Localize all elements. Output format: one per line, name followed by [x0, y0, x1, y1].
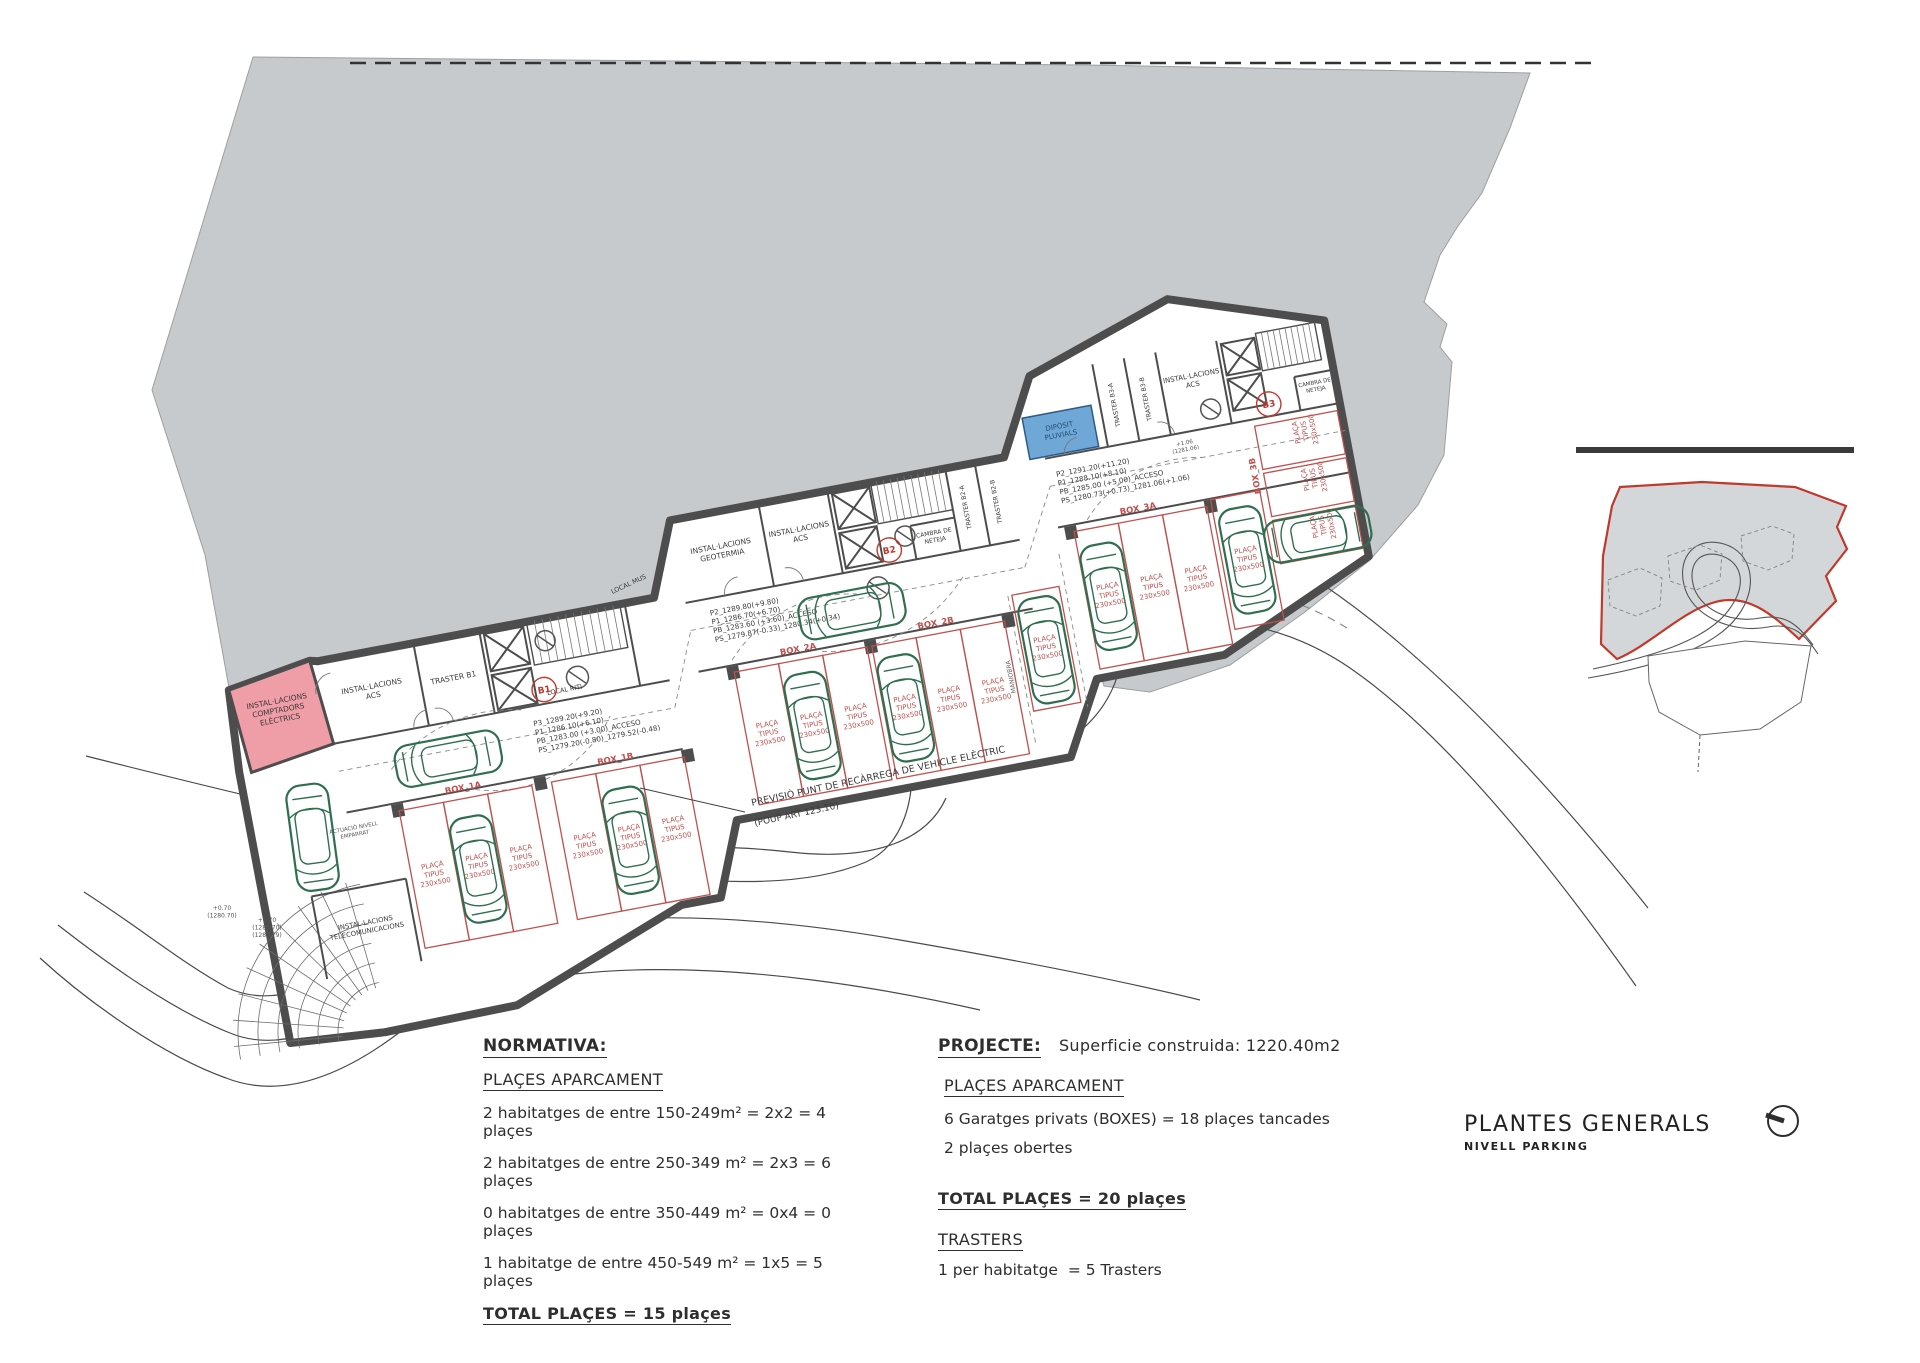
- location-inset-map: [1576, 447, 1854, 772]
- projecte-line: 6 Garatges privats (BOXES) = 18 plaçes t…: [944, 1110, 1368, 1128]
- normativa-block: NORMATIVA: PLAÇES APARCAMENT 2 habitatge…: [483, 1036, 843, 1323]
- normativa-total: TOTAL PLAÇES = 15 plaçes: [483, 1304, 731, 1325]
- inset-lower-parcel: [1648, 641, 1811, 735]
- projecte-heading: PROJECTE:: [938, 1036, 1041, 1058]
- normativa-subheading: PLAÇES APARCAMENT: [483, 1070, 663, 1091]
- projecte-line: 2 plaçes obertes: [944, 1139, 1368, 1157]
- projecte-superficie: Superficie construida: 1220.40m2: [1059, 1036, 1341, 1055]
- spot-level-entrance-1: +0.70(1280.70): [207, 905, 237, 920]
- trasters-heading: TRASTERS: [938, 1230, 1023, 1251]
- normativa-line: 1 habitatge de entre 450-549 m² = 1x5 = …: [483, 1254, 843, 1290]
- inset-parcel: [1601, 482, 1847, 659]
- normativa-heading: NORMATIVA:: [483, 1036, 607, 1058]
- north-arrow-icon: [1766, 1106, 1798, 1136]
- sheet-subtitle: NIVELL PARKING: [1464, 1140, 1711, 1153]
- title-block: PLANTES GENERALS NIVELL PARKING: [1464, 1112, 1711, 1153]
- normativa-line: 2 habitatges de entre 250-349 m² = 2x3 =…: [483, 1154, 843, 1190]
- normativa-line: 2 habitatges de entre 150-249m² = 2x2 = …: [483, 1104, 843, 1140]
- sheet-title: PLANTES GENERALS: [1464, 1112, 1711, 1137]
- projecte-subheading: PLAÇES APARCAMENT: [944, 1076, 1124, 1097]
- normativa-line: 0 habitatges de entre 350-449 m² = 0x4 =…: [483, 1204, 843, 1240]
- drawing-sheet: { "colors": { "terrain": "#c7cacc", "wal…: [0, 0, 1920, 1363]
- projecte-block: PROJECTE: Superficie construida: 1220.40…: [938, 1036, 1368, 1293]
- trasters-line: 1 per habitatge = 5 Trasters: [938, 1261, 1368, 1279]
- projecte-total: TOTAL PLAÇES = 20 plaçes: [938, 1189, 1186, 1210]
